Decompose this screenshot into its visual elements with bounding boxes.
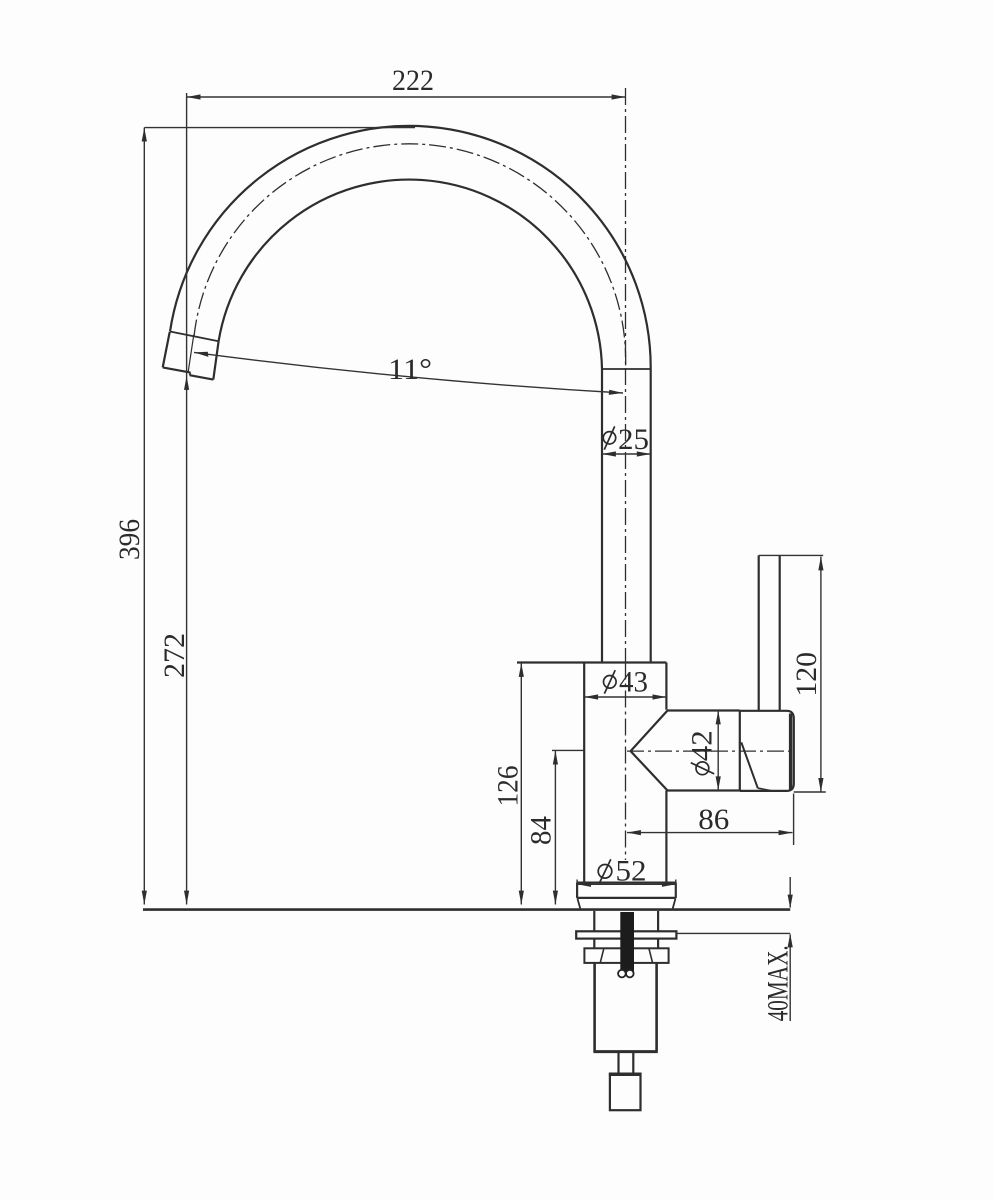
svg-text:52: 52 [616,854,647,887]
svg-text:42: 42 [685,730,718,761]
svg-text:120: 120 [790,652,823,697]
svg-text:11°: 11° [388,353,432,386]
svg-text:43: 43 [619,665,648,698]
svg-text:272: 272 [158,633,191,678]
svg-text:25: 25 [618,423,649,456]
svg-text:40MAX.: 40MAX. [762,945,795,1021]
svg-text:396: 396 [113,519,146,560]
svg-text:222: 222 [392,64,434,97]
svg-text:126: 126 [492,766,525,807]
svg-text:84: 84 [525,816,558,845]
svg-text:86: 86 [698,803,729,836]
